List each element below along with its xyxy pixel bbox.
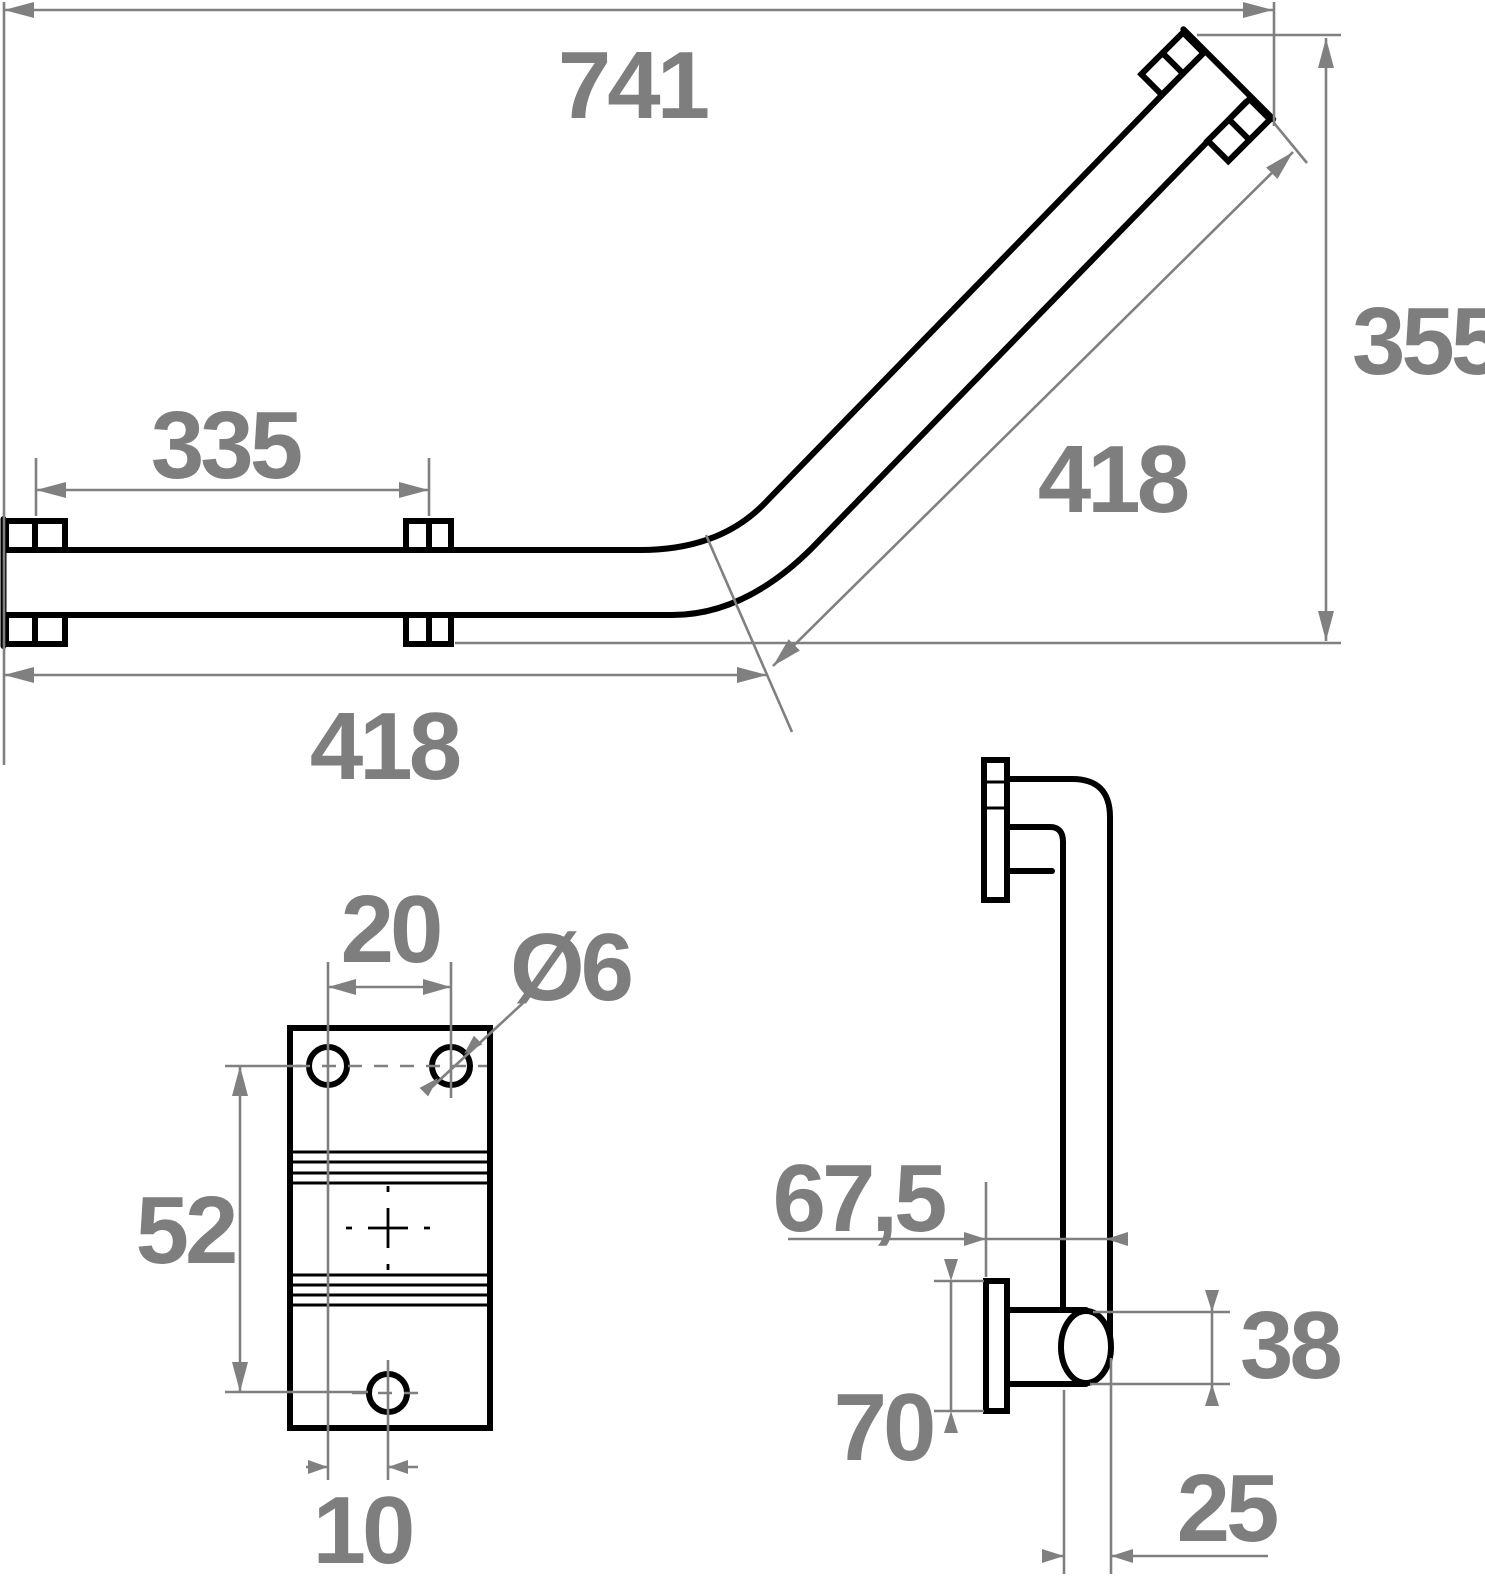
- arrowhead: [1205, 1290, 1219, 1312]
- arrowhead: [737, 667, 767, 683]
- dim-label-25: 25: [1177, 1455, 1277, 1562]
- diagonal-end-flange: [1140, 29, 1273, 162]
- dim-diagonal-length: 418: [706, 123, 1307, 732]
- plate-front-view: 20 Ø6 52 10: [136, 876, 631, 1583]
- dim-label-355: 355: [1352, 288, 1485, 395]
- technical-drawing-page: 741 355 418 418: [0, 0, 1485, 1583]
- dim-label-20: 20: [341, 876, 440, 983]
- bar-bottom-edge: [8, 102, 1246, 615]
- dim-bar-diameter: 38: [1090, 1290, 1340, 1406]
- arrowhead: [1111, 1549, 1133, 1563]
- arrowhead: [308, 1460, 328, 1474]
- arrowhead: [1042, 1549, 1064, 1563]
- dim-hole-pitch: 20: [328, 876, 451, 995]
- dim-label-418-horizontal: 418: [310, 693, 460, 800]
- dim-label-741: 741: [558, 32, 708, 139]
- dim-label-diameter-6: Ø6: [510, 914, 631, 1021]
- mid-flange: [406, 521, 451, 644]
- arrowhead: [964, 1232, 986, 1246]
- dim-label-335: 335: [151, 392, 301, 499]
- dim-fixing-centres: 335: [36, 392, 429, 516]
- dim-overall-width: 741: [4, 2, 1274, 765]
- arrowhead: [4, 667, 34, 683]
- lower-flange-plate: [986, 1281, 1007, 1411]
- arrowhead: [36, 482, 66, 498]
- arrowhead: [944, 1411, 958, 1433]
- main-view-grab-bar: 741 355 418 418: [4, 2, 1485, 800]
- extension-line: [1274, 123, 1307, 163]
- grab-bar-drawing: 741 355 418 418: [0, 0, 1485, 1583]
- arrowhead: [944, 1259, 958, 1281]
- arrowhead: [4, 2, 34, 18]
- dim-label-52: 52: [136, 1177, 235, 1284]
- arrowhead: [1318, 38, 1334, 68]
- bar-end-section: [1061, 1311, 1111, 1383]
- tube-inner-contour: [1007, 827, 1063, 1310]
- arrowhead: [232, 1362, 248, 1392]
- arrowhead: [1318, 611, 1334, 641]
- arrowhead: [232, 1066, 248, 1096]
- dim-label-70: 70: [834, 1374, 933, 1481]
- side-view: 67,5 70 38 25: [773, 760, 1341, 1574]
- arrowhead: [388, 1460, 408, 1474]
- dim-label-10: 10: [313, 1477, 412, 1583]
- arrowhead: [399, 482, 429, 498]
- wall-flange: [4, 519, 66, 646]
- arrowhead: [1243, 2, 1273, 18]
- dim-horizontal-length: 418: [4, 667, 767, 800]
- dim-wall-offset: 67,5: [773, 1145, 1128, 1277]
- dim-label-418-diagonal: 418: [1038, 426, 1188, 533]
- tube-outer-contour: [1007, 779, 1110, 1352]
- arrowhead: [1205, 1384, 1219, 1406]
- dim-hole-offset: 10: [306, 1460, 418, 1583]
- dim-flange-height: 70: [834, 1259, 984, 1481]
- extension-line-miter: [706, 535, 792, 732]
- dim-label-38: 38: [1240, 1292, 1340, 1399]
- dim-label-67-5: 67,5: [773, 1145, 945, 1252]
